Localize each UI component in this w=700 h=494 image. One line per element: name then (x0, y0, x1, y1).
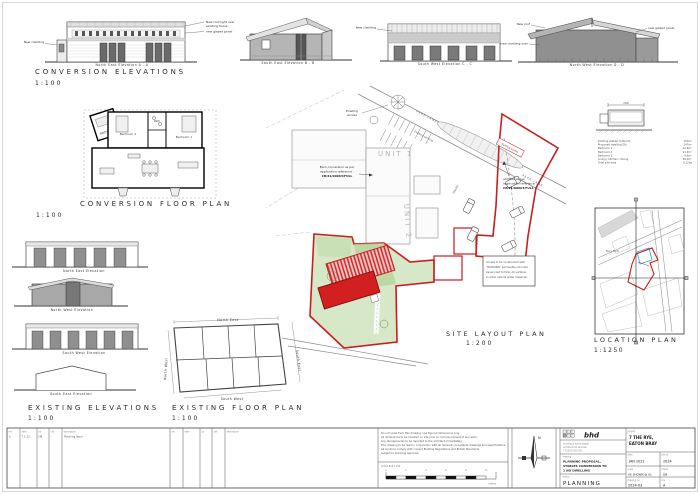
svg-text:date: date (628, 454, 634, 457)
existing-elevation-nw: North West Elevation (14, 278, 128, 312)
existing-elevations-scale: 1:100 (28, 415, 55, 422)
existing-parking-label: Existing parking (414, 129, 435, 142)
detail-and-schedule: 2400 Existing stables footprint153m² Pro… (594, 100, 698, 170)
svg-text:project: project (628, 430, 636, 433)
bottom-strip: rev date by chk description rev date by … (4, 426, 698, 492)
detail-drawing: 2400 (596, 102, 652, 133)
location-plan-scale: 1:1250 (594, 347, 624, 354)
label-south-west: South West (221, 397, 244, 401)
existing-elevations-drawing: North East Elevation North West Elevatio… (8, 234, 160, 402)
unit-1-label: UNIT 1 (378, 150, 413, 158)
svg-text:Bedroom 1: Bedroom 1 (598, 146, 613, 150)
svg-text:application reference :: application reference : (320, 170, 354, 174)
elevation-d: New roof new cladding over new glazed pa… (500, 18, 678, 67)
svg-text:Existing stables footprint: Existing stables footprint (598, 139, 630, 143)
svg-text:153m²: 153m² (683, 139, 692, 143)
annotation-cladding-c: New cladding (356, 26, 376, 30)
drawing-sheet: New cladding New roof light over existin… (0, 0, 700, 494)
annotation-cladding-d: new cladding over (500, 42, 528, 46)
svg-text:This drawing to be read in con: This drawing to be read in conjunction w… (381, 443, 506, 447)
stables-label: Stables (451, 184, 459, 195)
drawn-by: DB (663, 473, 667, 477)
svg-text:Subject to planning approval.: Subject to planning approval. (381, 451, 419, 455)
caption-existing-se: South East Elevation (50, 392, 92, 396)
svg-text:date: date (185, 431, 191, 434)
drawing-title-3: 1 NO DWELLING (563, 469, 591, 473)
svg-text:Barn conversion as per: Barn conversion as per (320, 165, 355, 169)
svg-text:application reference :: application reference : (503, 182, 537, 186)
svg-text:0.12ha: 0.12ha (683, 161, 692, 165)
location-plan-drawing: Bury Farm (592, 198, 696, 348)
svg-text:Bedroom 3: Bedroom 3 (598, 153, 613, 157)
job-number: 2024 (663, 460, 672, 464)
annotation-glazed-d: new glazed panel (648, 26, 674, 30)
surface-note-box: Access to be constructed with 'TRUEGRID'… (483, 256, 535, 286)
svg-text:status: status (563, 476, 571, 479)
location-plan-title: LOCATION PLAN (594, 336, 678, 344)
svg-text:Living / kitchen / dining: Living / kitchen / dining (598, 157, 629, 161)
existing-elevation-ne: North East Elevation (12, 242, 148, 273)
svg-text:Total site area: Total site area (598, 161, 617, 165)
existing-buildings (292, 130, 440, 244)
svg-text:ACCESS as per: ACCESS as per (503, 177, 526, 181)
status-planning: PLANNING (563, 481, 601, 487)
drawing-title-2: STABLES CONVERSION TO (563, 464, 607, 468)
svg-text:description: description (64, 431, 77, 434)
conversion-elevations-scale: 1:100 (35, 80, 62, 87)
existing-access-label-1b: access (347, 113, 358, 117)
svg-text:drawing no: drawing no (628, 479, 641, 482)
svg-text:11.2m²: 11.2m² (683, 150, 692, 154)
drawing-number: 2024-03 (628, 484, 642, 488)
svg-text:drawn: drawn (662, 468, 669, 471)
svg-text:Bedroom 2: Bedroom 2 (598, 150, 613, 154)
svg-text:job no: job no (661, 454, 669, 457)
svg-text:pavers laid to falls. All surf: pavers laid to falls. All surfaces (486, 270, 527, 274)
svg-text:7.1.22: 7.1.22 (22, 435, 31, 439)
svg-text:CB/21/00063/FULL: CB/21/00063/FULL (503, 186, 534, 190)
area-schedule: Existing stables footprint153m² Proposed… (598, 139, 692, 165)
existing-floor-plan-title: EXISTING FLOOR PLAN (172, 404, 304, 412)
svg-text:to allow natural water dispers: to allow natural water dispersal. (486, 275, 528, 279)
conversion-floor-plan-scale: 1:100 (36, 212, 63, 219)
svg-text:Proposed dwelling GIA: Proposed dwelling GIA (598, 143, 627, 147)
room-label-bedroom-1: Bedroom 1 (176, 135, 193, 139)
detail-dimension: 2400 (623, 102, 629, 105)
svg-text:Do not scale from this drawing: Do not scale from this drawing. Use figu… (381, 431, 460, 435)
svg-text:'TRUEGRID' permeable concrete: 'TRUEGRID' permeable concrete (486, 265, 528, 269)
drawing-title-1: PLANNING PROPOSAL, (563, 460, 601, 464)
svg-text:scale: scale (628, 468, 634, 471)
svg-text:All works to comply with curre: All works to comply with current Buildin… (381, 447, 480, 451)
site-layout-plan-scale: 1:200 (466, 340, 493, 347)
svg-text:Planning issue: Planning issue (64, 435, 83, 439)
svg-text:date: date (22, 431, 28, 434)
caption-elevation-b: South East Elevation B - B (261, 61, 314, 65)
caption-elevation-a: North East Elevation A - A (96, 63, 149, 67)
svg-text:48.0m²: 48.0m² (683, 157, 692, 161)
road-label-1: PARK LANE (416, 109, 439, 123)
elevation-a: New cladding New roof light over existin… (24, 20, 236, 67)
svg-text:description: description (227, 431, 240, 434)
label-north-west: North West (163, 357, 169, 380)
existing-elevation-sw: South West Elevation (12, 324, 148, 355)
room-label-bath: Bath (154, 119, 160, 123)
svg-text:Any discrepancies to be report: Any discrepancies to be reported to the … (381, 439, 462, 443)
caption-elevation-c: South West Elevation C - C (418, 62, 473, 66)
svg-text:T 01525 000 000: T 01525 000 000 (563, 450, 582, 453)
svg-text:Access to be constructed with: Access to be constructed with (486, 260, 525, 264)
existing-elevation-se: South East Elevation (14, 366, 136, 396)
svg-text:12.8m²: 12.8m² (683, 146, 692, 150)
label-north-east: North East (217, 318, 239, 322)
elevation-b: South East Elevation B - B (240, 18, 352, 65)
conversion-floor-plan-title: CONVERSION FLOOR PLAN (80, 200, 232, 208)
map-label-bury-farm: Bury Farm (606, 249, 620, 253)
north-label: N (538, 436, 541, 440)
annotation-rooflight-2: existing frame (206, 24, 228, 28)
svg-text:SCALE BAR 1:200: SCALE BAR 1:200 (381, 465, 401, 468)
svg-text:CB/21/00063/FULL: CB/21/00063/FULL (322, 174, 353, 178)
project-line-1: 7 THE RYE, (629, 435, 654, 440)
caption-elevation-d: North West Elevation D - D (570, 63, 624, 67)
existing-elevations-title: EXISTING ELEVATIONS (28, 404, 159, 412)
logo-text: bhd (584, 432, 600, 440)
svg-text:All dimensions to be checked o: All dimensions to be checked on site pri… (381, 435, 478, 439)
svg-text:9.6m²: 9.6m² (684, 153, 692, 157)
site-layout-plan-title: SITE LAYOUT PLAN (446, 330, 546, 338)
svg-text:metres: metres (488, 483, 497, 486)
svg-text:A: A (9, 435, 11, 439)
annotation-new-cladding: New cladding (24, 40, 44, 44)
project-line-2: EATON BRAY (629, 441, 657, 446)
svg-text:drawing: drawing (563, 456, 572, 459)
caption-existing-sw: South West Elevation (63, 351, 106, 355)
elevation-c: New cladding South West Elevation C - C (356, 24, 512, 66)
conversion-floor-plan-drawing: Bedroom 3 Bedroom 2 Bath Bedroom 1 (70, 104, 235, 200)
conversion-elevations-title: CONVERSION ELEVATIONS (35, 68, 186, 76)
scale-value: AS SHOWN @ A1 (628, 473, 652, 477)
existing-floor-plan-scale: 1:100 (172, 415, 199, 422)
room-label-bedroom-2: Bedroom 2 (120, 132, 137, 136)
site-layout-plan-drawing: PARK LANE PARK LANE Existing parking (266, 86, 566, 366)
annotation-new-roof: New roof (517, 22, 531, 26)
conversion-elevations-drawing: New cladding New roof light over existin… (0, 0, 700, 100)
svg-text:DB: DB (39, 435, 43, 439)
svg-text:-: - (51, 436, 52, 439)
date-value: JAN 2022 (628, 460, 645, 464)
svg-text:147m²: 147m² (683, 143, 692, 147)
caption-existing-ne: North East Elevation (63, 269, 105, 273)
caption-existing-nw: North West Elevation (51, 308, 94, 312)
annotation-glazed-panel: new glazed panel (206, 30, 232, 34)
